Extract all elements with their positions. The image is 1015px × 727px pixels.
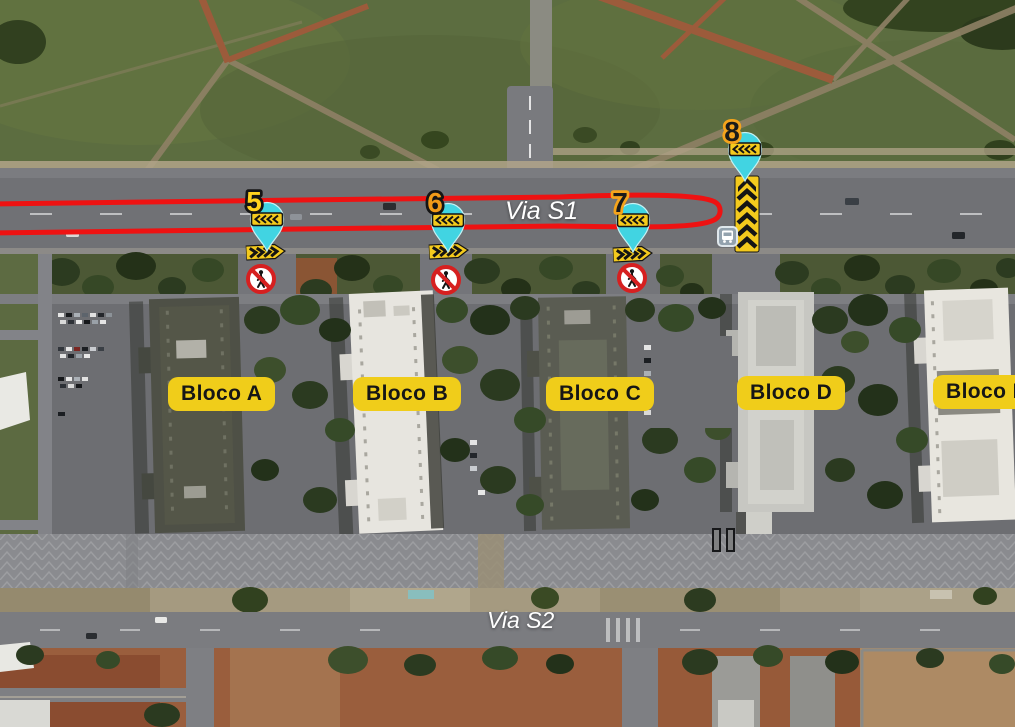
- marker-number: 6: [427, 190, 443, 218]
- marker-number: 7: [612, 190, 628, 218]
- road-label-via-s1: Via S1: [505, 199, 578, 224]
- no-pedestrians-sign-7: [617, 263, 647, 293]
- marker-pin-6[interactable]: 6: [422, 190, 470, 256]
- label-bloco-d: Bloco D: [737, 376, 845, 410]
- label-bloco-e: Bloco E: [933, 375, 1015, 409]
- marker-number: 5: [246, 189, 262, 217]
- marker-pin-7[interactable]: 7: [607, 190, 655, 256]
- label-bloco-c: Bloco C: [546, 377, 654, 411]
- marker-pin-8[interactable]: 8: [719, 119, 767, 185]
- marker-number: 8: [724, 119, 740, 147]
- road-label-via-s2: Via S2: [487, 609, 554, 632]
- marker-pin-5[interactable]: 5: [241, 189, 289, 255]
- no-pedestrians-sign-5: [246, 264, 276, 294]
- bus-stop-icon: [717, 226, 738, 247]
- no-pedestrians-sign-6: [431, 265, 461, 295]
- satellite-map: 5 6 7 8: [0, 0, 1015, 727]
- label-bloco-a: Bloco A: [168, 377, 275, 411]
- label-bloco-b: Bloco B: [353, 377, 461, 411]
